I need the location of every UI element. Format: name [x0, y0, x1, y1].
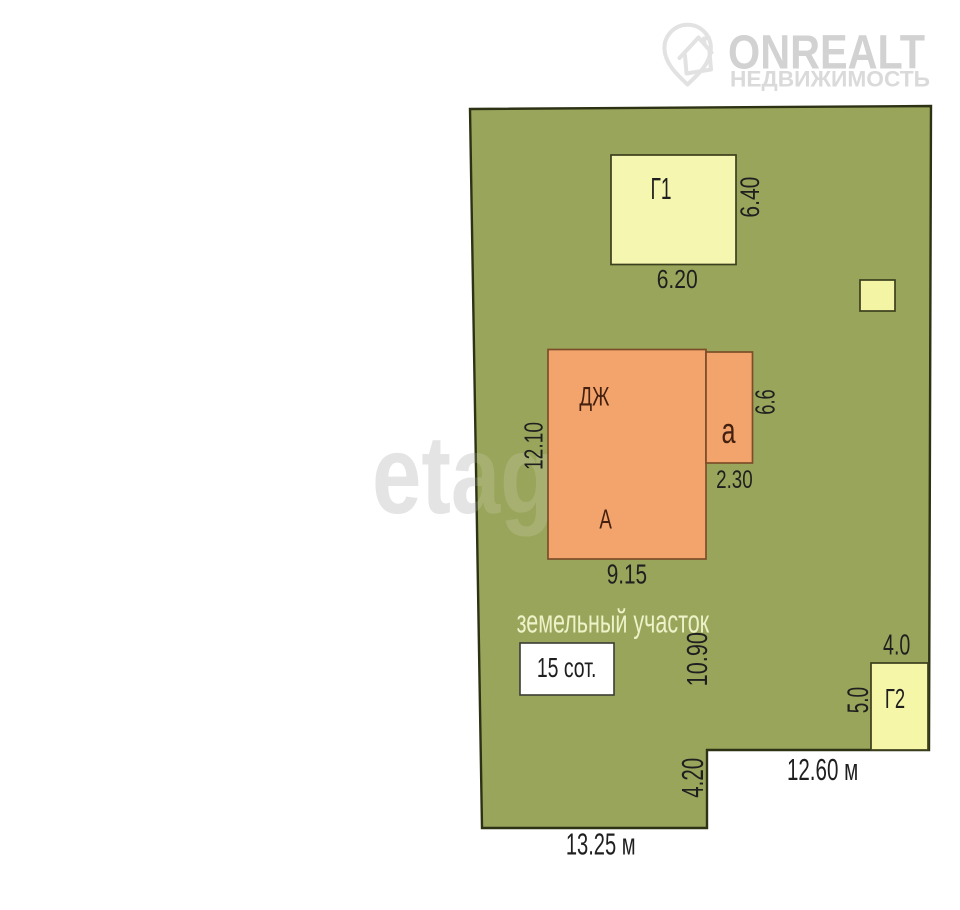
- svg-text:2.30: 2.30: [716, 466, 753, 494]
- svg-text:9.15: 9.15: [607, 559, 647, 590]
- svg-text:12.10: 12.10: [518, 422, 548, 470]
- svg-text:А: А: [599, 503, 612, 534]
- svg-text:Г2: Г2: [885, 683, 905, 714]
- svg-text:а: а: [722, 410, 737, 451]
- svg-text:15 сот.: 15 сот.: [537, 652, 597, 683]
- svg-text:6.40: 6.40: [735, 177, 765, 218]
- svg-text:5.0: 5.0: [842, 687, 875, 713]
- svg-text:12.60 м: 12.60 м: [787, 752, 858, 787]
- svg-text:НЕДВИЖИМОСТЬ: НЕДВИЖИМОСТЬ: [730, 66, 930, 91]
- svg-text:ДЖ: ДЖ: [579, 382, 609, 412]
- svg-text:4.0: 4.0: [883, 629, 910, 661]
- svg-text:6.6: 6.6: [749, 389, 780, 415]
- svg-text:10.90: 10.90: [682, 632, 714, 686]
- svg-text:6.20: 6.20: [657, 264, 698, 294]
- svg-text:земельный участок: земельный участок: [517, 604, 710, 640]
- svg-text:Г1: Г1: [651, 171, 672, 206]
- svg-text:4.20: 4.20: [675, 758, 710, 798]
- svg-text:13.25 м: 13.25 м: [566, 826, 636, 861]
